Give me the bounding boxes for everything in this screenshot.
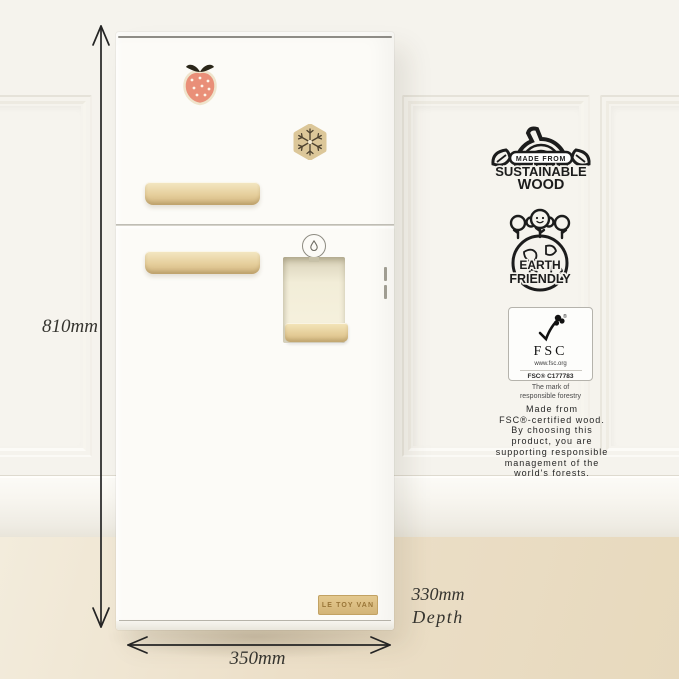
fsc-description: Made from FSC®-certified wood. By choosi…	[462, 404, 642, 479]
badge-wood-text: WOOD	[518, 177, 565, 192]
freezer-handle	[145, 182, 260, 205]
description-line: By choosing this	[462, 425, 642, 436]
fridge-handle	[145, 251, 260, 274]
wall-panel-left	[0, 95, 92, 457]
description-line: Made from	[462, 404, 642, 415]
fsc-url: www.fsc.org	[534, 361, 566, 367]
earth-friendly-badge: EARTH FRIENDLY	[496, 206, 584, 292]
width-label: 350mm	[200, 648, 315, 670]
description-line: product, you are	[462, 436, 642, 447]
badge-earth-text: EARTH	[519, 258, 560, 272]
water-drop-icon	[302, 234, 326, 258]
door-latch-lower	[384, 285, 387, 299]
height-arrowhead-top	[93, 26, 109, 45]
brand-plaque-label: LE TOY VAN	[322, 602, 374, 609]
depth-value: 330mm	[398, 583, 478, 606]
description-line: supporting responsible	[462, 447, 642, 458]
fsc-tree-icon: ®	[535, 313, 567, 343]
svg-text:®: ®	[563, 313, 567, 320]
sustainable-wood-badge: MADE FROM SUSTAINABLE WOOD	[486, 120, 596, 192]
height-label: 810mm	[14, 316, 98, 338]
fridge-top-edge	[118, 36, 392, 38]
fsc-acronym: FSC	[534, 344, 568, 360]
toy-fridge: LE TOY VAN	[116, 32, 394, 630]
fsc-divider	[520, 370, 582, 371]
strawberry-magnet	[181, 62, 219, 106]
fsc-label: ® FSC www.fsc.org FSC® C177783	[508, 307, 593, 381]
dispenser-tray	[285, 323, 348, 342]
depth-label: 330mm Depth	[398, 583, 478, 629]
tree-right-icon	[555, 216, 569, 238]
product-image: LE TOY VAN 810mm 350mm 330mm Depth MADE	[0, 0, 679, 679]
description-line: world's forests.	[462, 468, 642, 479]
tree-left-icon	[511, 216, 525, 238]
badge-made-from-text: MADE FROM	[516, 156, 566, 163]
depth-word: Depth	[398, 606, 478, 629]
door-latch-upper	[384, 267, 387, 281]
snowflake-magnet	[292, 124, 328, 160]
fsc-tagline: The mark of responsible forestry	[508, 384, 593, 401]
wall-panel-right	[600, 95, 679, 457]
description-line: management of the	[462, 458, 642, 469]
tree-middle-icon	[527, 210, 554, 237]
fsc-license-code: FSC® C177783	[528, 373, 574, 380]
brand-plaque: LE TOY VAN	[318, 595, 378, 615]
description-line: FSC®-certified wood.	[462, 415, 642, 426]
freezer-door-divider	[116, 224, 394, 226]
badge-friendly-text: FRIENDLY	[509, 272, 571, 286]
fridge-base	[116, 621, 394, 630]
